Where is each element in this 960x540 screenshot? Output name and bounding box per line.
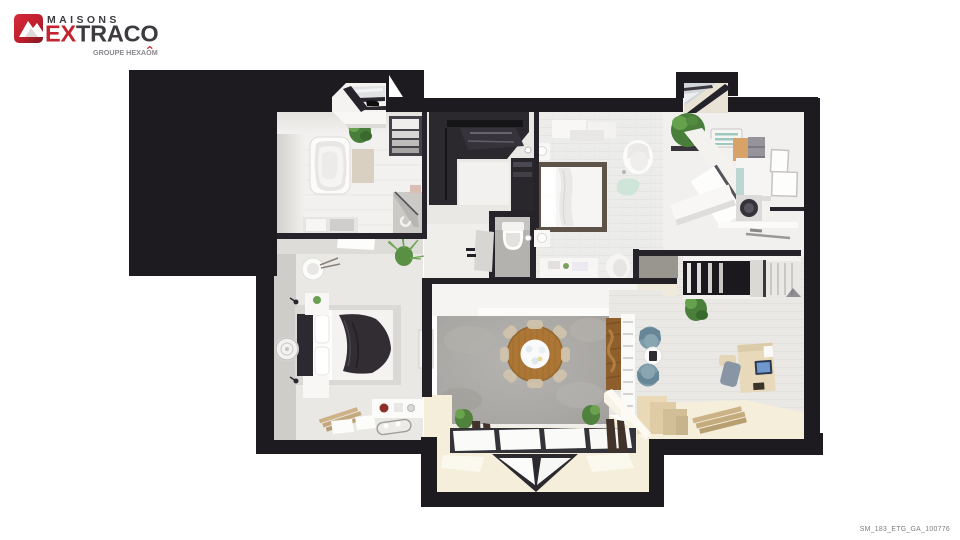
svg-text:EXTRACO: EXTRACO bbox=[45, 21, 159, 47]
svg-text:SM_183_ETG_GA_100776: SM_183_ETG_GA_100776 bbox=[860, 526, 950, 533]
svg-text:GROUPE HEXAOM: GROUPE HEXAOM bbox=[93, 48, 158, 57]
